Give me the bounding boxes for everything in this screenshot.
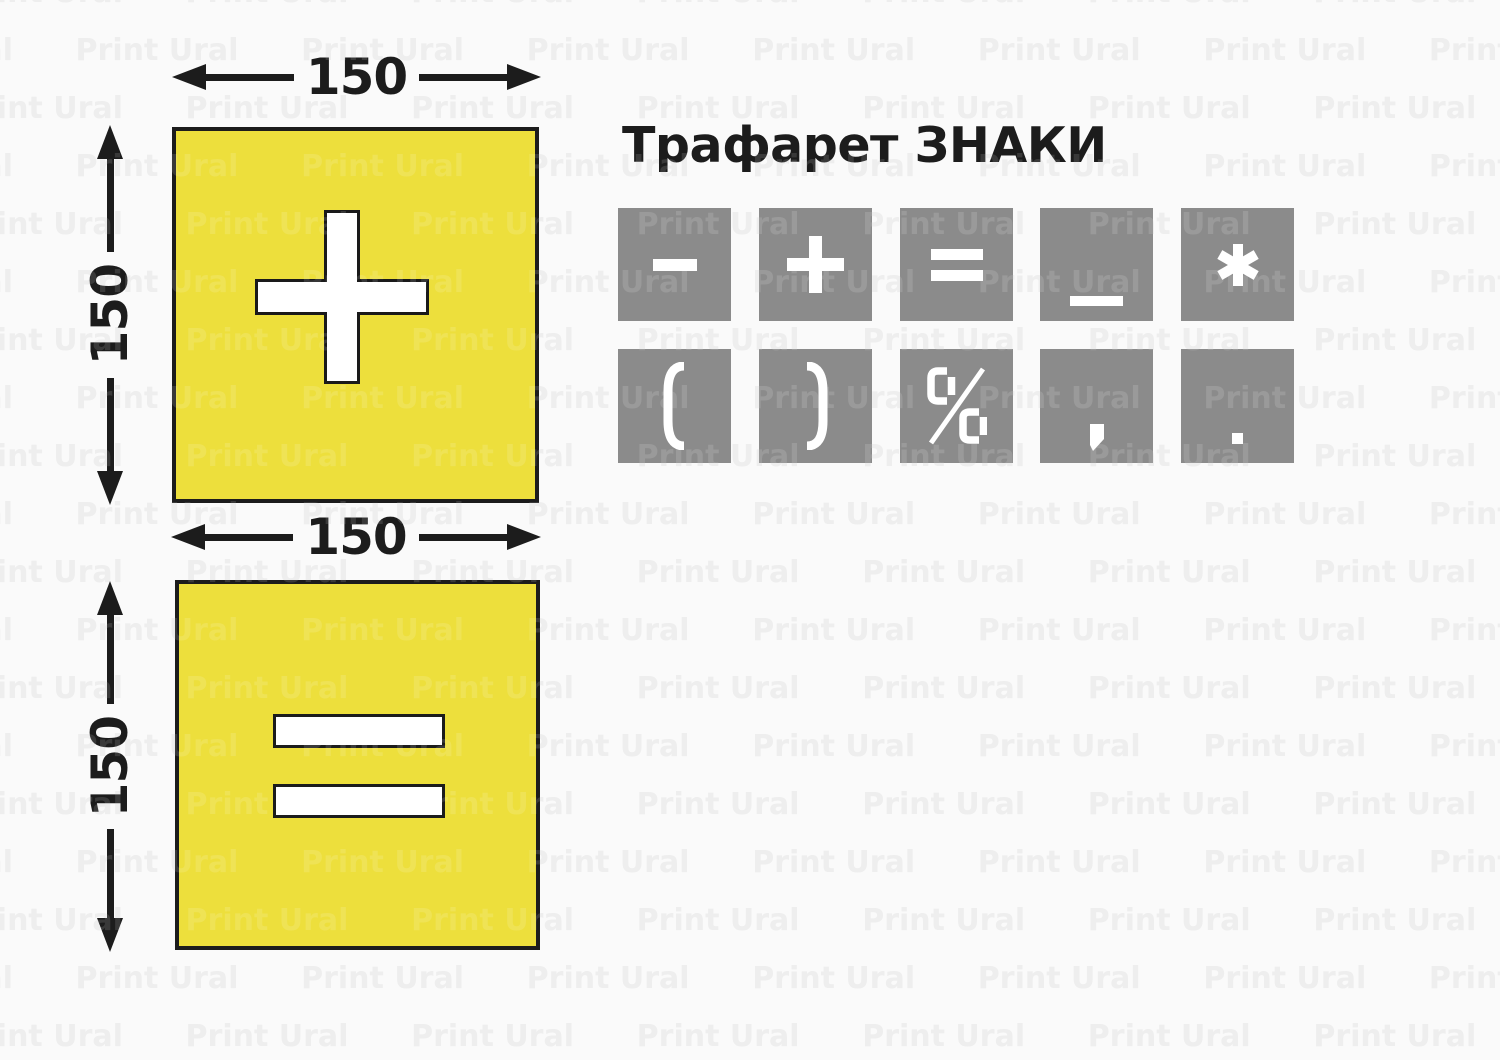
period-icon xyxy=(1232,433,1243,444)
asterisk-icon xyxy=(1217,244,1259,286)
content-layer: 150 150 150 xyxy=(0,0,1500,1060)
sign-tile-underscore xyxy=(1040,208,1153,321)
arrowhead-left-icon xyxy=(172,64,206,90)
plus-cutout-icon xyxy=(253,209,430,390)
arrowhead-up-icon xyxy=(97,125,123,159)
arrowhead-left-icon xyxy=(171,524,205,550)
sign-tile-equals xyxy=(900,208,1013,321)
arrowhead-down-icon xyxy=(97,918,123,952)
sign-tile-paren-close xyxy=(759,349,872,463)
dimension-top-square-width: 150 xyxy=(172,53,541,101)
arrowhead-right-icon xyxy=(507,64,541,90)
dimension-line xyxy=(107,159,114,252)
sign-tile-percent xyxy=(900,349,1013,463)
minus-icon xyxy=(653,259,697,271)
dimension-line xyxy=(107,829,114,918)
dimension-line xyxy=(107,378,114,471)
sign-tile-plus xyxy=(759,208,872,321)
plus-icon xyxy=(787,236,844,293)
equals-icon xyxy=(931,249,983,281)
underscore-icon xyxy=(1070,296,1123,306)
sign-tile-period xyxy=(1181,349,1294,463)
equals-bar-bottom xyxy=(273,784,445,818)
sign-tile-paren-open xyxy=(618,349,731,463)
equals-bar-top xyxy=(273,714,445,748)
sign-tile-asterisk xyxy=(1181,208,1294,321)
stencil-square-equals xyxy=(175,580,540,950)
dimension-label: 150 xyxy=(85,716,135,817)
dimension-line xyxy=(205,534,293,541)
dimension-label: 150 xyxy=(85,264,135,365)
arrowhead-right-icon xyxy=(507,524,541,550)
stencil-product-sheet: Print Ural Print Ural Print Ural Print U… xyxy=(0,0,1500,1060)
dimension-label: 150 xyxy=(306,52,407,102)
comma-icon xyxy=(1090,424,1104,451)
dimension-line xyxy=(206,74,294,81)
dimension-line xyxy=(107,615,114,704)
paren-open-icon xyxy=(663,362,687,450)
percent-icon xyxy=(927,367,987,445)
arrowhead-up-icon xyxy=(97,581,123,615)
dimension-bottom-square-height: 150 xyxy=(97,581,123,952)
paren-close-icon xyxy=(804,362,828,450)
stencil-square-plus xyxy=(172,127,539,503)
dimension-top-square-height: 150 xyxy=(97,125,123,505)
dimension-line xyxy=(419,74,507,81)
dimension-line xyxy=(419,534,507,541)
page-title: Трафарет ЗНАКИ xyxy=(622,121,1107,170)
sign-tile-comma xyxy=(1040,349,1153,463)
sign-tile-minus xyxy=(618,208,731,321)
arrowhead-down-icon xyxy=(97,471,123,505)
dimension-label: 150 xyxy=(305,512,406,562)
dimension-bottom-square-width: 150 xyxy=(171,513,541,561)
